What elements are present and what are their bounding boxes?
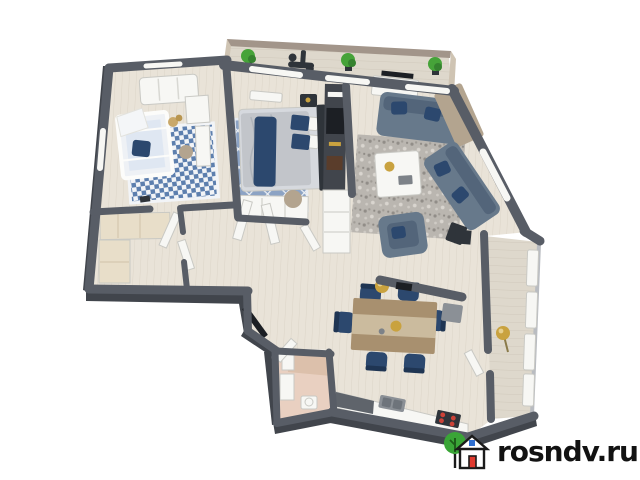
desk bbox=[195, 126, 210, 166]
desk-chair bbox=[179, 145, 193, 159]
window bbox=[100, 131, 103, 168]
logo-door bbox=[469, 456, 476, 468]
fridge bbox=[454, 229, 471, 244]
window bbox=[146, 64, 180, 66]
floorplan-image: rosndv.ru bbox=[0, 0, 640, 480]
watermark: rosndv.ru bbox=[442, 430, 638, 474]
dining-chair bbox=[403, 353, 425, 373]
logo-window bbox=[469, 440, 475, 446]
house-with-tree-icon bbox=[442, 430, 490, 474]
pouf bbox=[284, 190, 302, 208]
dining-chair bbox=[333, 311, 354, 333]
bed-pillow bbox=[290, 114, 309, 131]
closet-upper bbox=[100, 212, 170, 239]
window bbox=[408, 87, 447, 91]
washbasin bbox=[280, 374, 294, 400]
bed-pillow bbox=[291, 133, 310, 150]
coffee-table bbox=[375, 151, 422, 198]
watermark-text: rosndv.ru bbox=[497, 438, 638, 466]
toilet bbox=[301, 396, 317, 409]
tv-icon bbox=[326, 108, 344, 134]
highchair bbox=[441, 303, 463, 324]
dining-chair bbox=[365, 351, 387, 371]
crib bbox=[116, 106, 173, 179]
dining-table bbox=[351, 298, 438, 354]
floorplan-svg bbox=[0, 0, 640, 480]
wardrobe-column bbox=[323, 190, 350, 253]
dresser bbox=[185, 95, 210, 124]
bed-throw bbox=[253, 116, 276, 186]
double-bed bbox=[238, 104, 328, 193]
window bbox=[328, 78, 367, 82]
armchair bbox=[377, 211, 428, 259]
